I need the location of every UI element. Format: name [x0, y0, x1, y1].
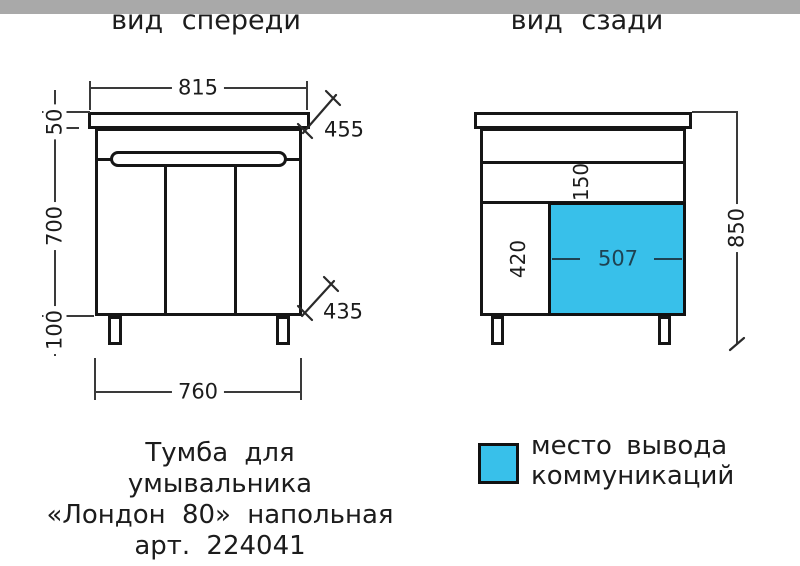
back-leg-right: [658, 316, 671, 345]
legend-label-line1: место вывода: [531, 431, 727, 461]
caption-line-2: умывальника: [46, 469, 393, 500]
front-leg-right: [276, 316, 290, 345]
dim-507-label: 507: [592, 248, 644, 271]
caption-line-4: арт. 224041: [46, 531, 393, 562]
back-countertop: [474, 112, 692, 129]
dim-507-dash-left: [552, 258, 580, 260]
floor-line: [0, 0, 800, 14]
dim-435-label: 435: [317, 301, 369, 324]
legend-cyan-swatch: [478, 443, 519, 484]
dim-700-label: 700: [44, 202, 67, 250]
caption-line-3: «Лондон 80» напольная: [46, 500, 393, 531]
dim-760-label: 760: [172, 381, 224, 404]
dim-760-ext-left: [94, 358, 96, 400]
product-caption: Тумба для умывальника «Лондон 80» наполь…: [46, 438, 393, 562]
front-door-divider-right: [234, 167, 237, 314]
front-countertop: [88, 112, 310, 129]
caption-line-1: Тумба для: [46, 438, 393, 469]
back-leg-left: [491, 316, 504, 345]
front-door-divider-left: [164, 167, 167, 314]
dim-850-label: 850: [726, 204, 749, 252]
dim-420-label: 420: [507, 236, 529, 282]
front-leg-left: [108, 316, 122, 345]
dim-50-label: 50: [44, 105, 67, 140]
dim-815-ext-left: [89, 81, 91, 110]
dim-150-label: 150: [570, 159, 592, 205]
dim-507-dash-right: [654, 258, 682, 260]
dim-815-label: 815: [172, 77, 224, 100]
dim-760-ext-right: [300, 358, 302, 400]
technical-drawing-page: вид спереди 815 50 700 100 455 435: [0, 0, 800, 566]
legend-label-line2: коммуникаций: [531, 461, 734, 491]
front-handle: [110, 151, 287, 167]
dim-815-ext-right: [306, 81, 308, 110]
dim-850-ext-top: [692, 111, 738, 113]
dim-455-label: 455: [318, 119, 370, 142]
dim-100-label: 100: [44, 306, 67, 354]
